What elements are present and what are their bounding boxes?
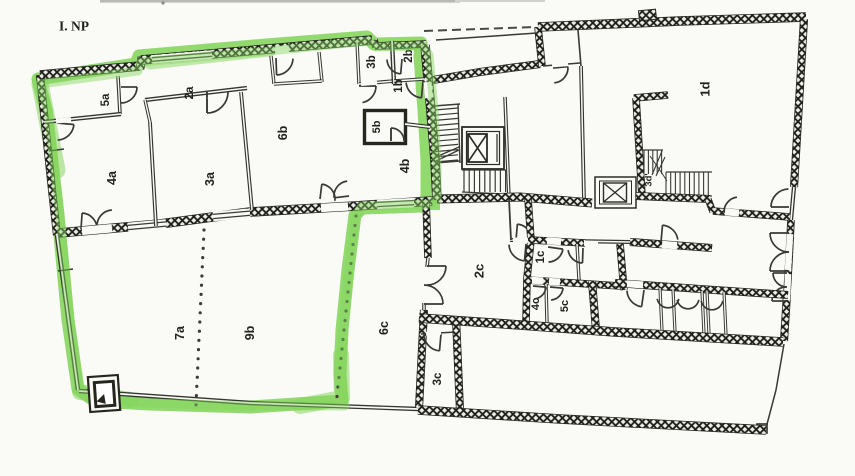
svg-text:1d: 1d — [698, 81, 713, 96]
svg-text:3a: 3a — [203, 171, 217, 186]
svg-text:7a: 7a — [173, 325, 187, 340]
svg-text:6b: 6b — [276, 125, 290, 140]
svg-text:6c: 6c — [377, 321, 391, 335]
svg-text:5c: 5c — [559, 300, 571, 312]
svg-text:4c: 4c — [530, 298, 542, 310]
svg-text:1c: 1c — [535, 250, 547, 263]
svg-text:2c: 2c — [472, 264, 487, 278]
svg-text:2a: 2a — [184, 86, 196, 99]
svg-text:3d': 3d' — [644, 173, 655, 186]
svg-text:1b: 1b — [393, 79, 405, 92]
svg-text:4b: 4b — [398, 158, 412, 173]
svg-text:5b: 5b — [371, 120, 383, 133]
svg-text:3b: 3b — [366, 55, 378, 68]
svg-text:I. NP: I. NP — [59, 19, 89, 34]
svg-text:3c: 3c — [432, 372, 444, 385]
svg-text:5a: 5a — [100, 93, 112, 106]
svg-text:4a: 4a — [105, 170, 119, 185]
svg-text:2b: 2b — [403, 49, 415, 62]
svg-text:9b: 9b — [243, 325, 257, 340]
